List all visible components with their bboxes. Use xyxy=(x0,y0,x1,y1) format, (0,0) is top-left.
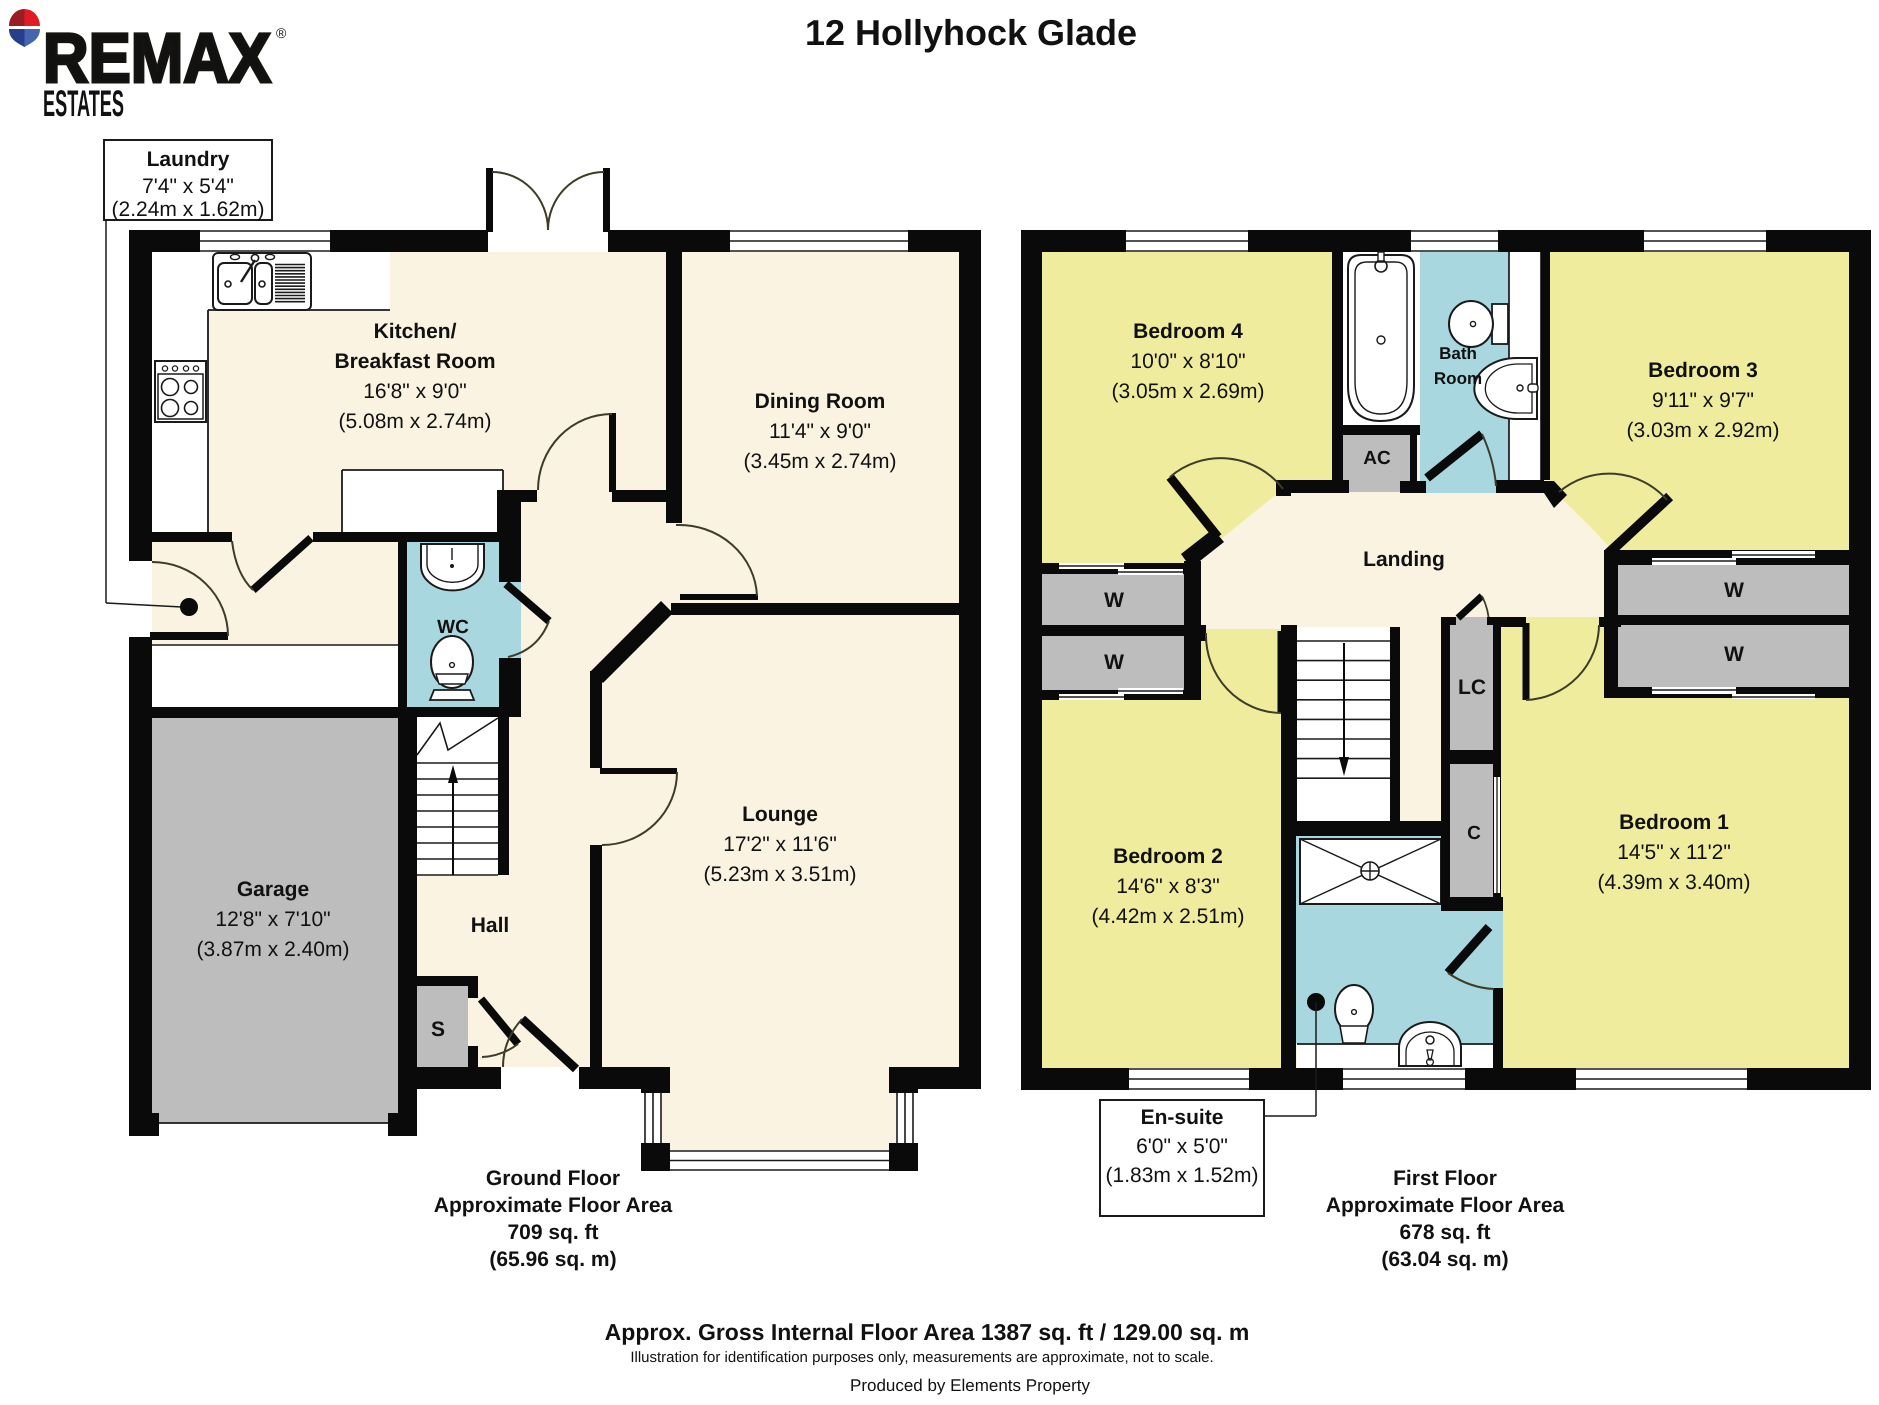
svg-text:First Floor: First Floor xyxy=(1393,1167,1497,1190)
svg-text:Ground Floor: Ground Floor xyxy=(486,1167,620,1190)
svg-text:(63.04 sq. m): (63.04 sq. m) xyxy=(1381,1248,1508,1271)
svg-text:W: W xyxy=(1104,589,1124,612)
svg-text:(5.23m x 3.51m): (5.23m x 3.51m) xyxy=(704,863,857,886)
svg-text:(3.45m x 2.74m): (3.45m x 2.74m) xyxy=(744,450,897,473)
svg-text:Illustration for identificatio: Illustration for identification purposes… xyxy=(630,1349,1213,1366)
svg-text:S: S xyxy=(431,1018,445,1041)
svg-text:Bath: Bath xyxy=(1439,344,1477,363)
svg-text:12'8" x 7'10": 12'8" x 7'10" xyxy=(215,908,330,931)
svg-text:(5.08m x 2.74m): (5.08m x 2.74m) xyxy=(339,410,492,433)
svg-text:Approximate Floor Area: Approximate Floor Area xyxy=(434,1194,673,1217)
svg-text:W: W xyxy=(1724,579,1744,602)
svg-text:Bedroom 3: Bedroom 3 xyxy=(1648,359,1758,382)
svg-text:Bedroom 4: Bedroom 4 xyxy=(1133,320,1243,343)
svg-text:Hall: Hall xyxy=(471,914,510,937)
svg-text:(3.87m x 2.40m): (3.87m x 2.40m) xyxy=(197,938,350,961)
svg-text:16'8" x 9'0": 16'8" x 9'0" xyxy=(363,380,467,403)
svg-text:(4.39m x 3.40m): (4.39m x 3.40m) xyxy=(1598,871,1751,894)
svg-text:Approximate Floor Area: Approximate Floor Area xyxy=(1326,1194,1565,1217)
svg-text:14'6" x 8'3": 14'6" x 8'3" xyxy=(1116,875,1220,898)
svg-text:Room: Room xyxy=(1434,369,1482,388)
svg-text:(1.83m x 1.52m): (1.83m x 1.52m) xyxy=(1106,1164,1259,1187)
svg-text:Kitchen/: Kitchen/ xyxy=(374,320,457,343)
svg-text:9'11" x 9'7": 9'11" x 9'7" xyxy=(1652,389,1754,412)
svg-text:AC: AC xyxy=(1363,448,1391,469)
svg-text:Bedroom 1: Bedroom 1 xyxy=(1619,811,1729,834)
svg-text:ESTATES: ESTATES xyxy=(43,83,124,124)
svg-text:Approx. Gross Internal Floor A: Approx. Gross Internal Floor Area 1387 s… xyxy=(605,1319,1250,1345)
svg-text:(65.96 sq. m): (65.96 sq. m) xyxy=(489,1248,616,1271)
svg-text:(4.42m x 2.51m): (4.42m x 2.51m) xyxy=(1092,905,1245,928)
svg-text:Breakfast Room: Breakfast Room xyxy=(334,350,495,373)
svg-text:(3.05m x 2.69m): (3.05m x 2.69m) xyxy=(1112,380,1265,403)
svg-text:W: W xyxy=(1724,643,1744,666)
svg-text:Produced by Elements Property: Produced by Elements Property xyxy=(850,1376,1091,1395)
svg-text:12 Hollyhock Glade: 12 Hollyhock Glade xyxy=(805,12,1137,53)
svg-text:Laundry: Laundry xyxy=(147,148,230,171)
svg-text:Lounge: Lounge xyxy=(742,803,818,826)
svg-text:7'4" x 5'4": 7'4" x 5'4" xyxy=(142,175,234,198)
svg-text:C: C xyxy=(1467,823,1481,844)
svg-text:14'5" x 11'2": 14'5" x 11'2" xyxy=(1617,841,1731,864)
svg-text:WC: WC xyxy=(437,617,469,638)
svg-text:(2.24m x 1.62m): (2.24m x 1.62m) xyxy=(112,198,265,221)
svg-text:709 sq. ft: 709 sq. ft xyxy=(507,1221,598,1244)
svg-text:17'2" x 11'6": 17'2" x 11'6" xyxy=(723,833,837,856)
svg-text:6'0" x 5'0": 6'0" x 5'0" xyxy=(1136,1135,1228,1158)
svg-text:En-suite: En-suite xyxy=(1141,1106,1224,1129)
svg-text:10'0" x 8'10": 10'0" x 8'10" xyxy=(1130,350,1245,373)
svg-text:Bedroom 2: Bedroom 2 xyxy=(1113,845,1223,868)
svg-text:Dining Room: Dining Room xyxy=(755,390,886,413)
svg-text:W: W xyxy=(1104,651,1124,674)
svg-text:LC: LC xyxy=(1458,676,1486,699)
svg-text:11'4" x 9'0": 11'4" x 9'0" xyxy=(769,420,871,443)
svg-text:Landing: Landing xyxy=(1363,548,1445,571)
svg-text:(3.03m x 2.92m): (3.03m x 2.92m) xyxy=(1627,419,1780,442)
svg-text:678 sq. ft: 678 sq. ft xyxy=(1399,1221,1490,1244)
svg-text:Garage: Garage xyxy=(237,878,309,901)
svg-text:®: ® xyxy=(276,25,287,41)
